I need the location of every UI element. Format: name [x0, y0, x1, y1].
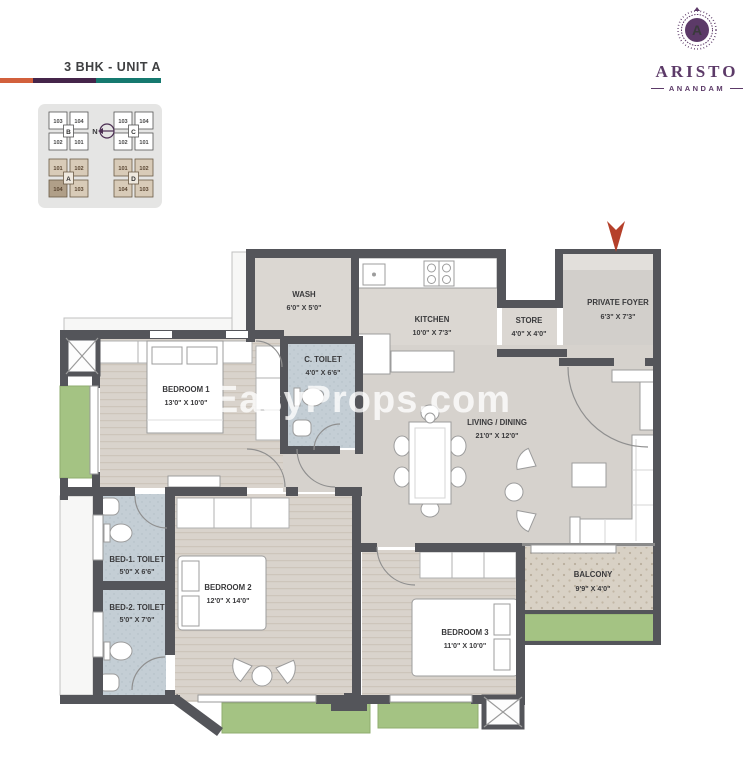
- svg-text:103: 103: [139, 187, 148, 193]
- room-label-bed2-toilet: BED-2. TOILET: [109, 603, 165, 612]
- c-toilet-basin-icon: [293, 420, 311, 436]
- room-label-bedroom1: BEDROOM 1: [162, 385, 210, 394]
- svg-text:B: B: [66, 129, 71, 136]
- logo-emblem-icon: A: [674, 6, 720, 56]
- bed2-toilet-wc-icon: [104, 642, 132, 660]
- room-dims-bedroom2: 12'0" X 14'0": [206, 596, 249, 605]
- logo-brand-text: ARISTO: [642, 62, 751, 82]
- entry-arrow-icon: [607, 221, 625, 252]
- room-label-bed1-toilet: BED-1. TOILET: [109, 555, 165, 564]
- room-dims-bed2-toilet: 5'0" X 7'0": [119, 615, 154, 624]
- svg-text:102: 102: [118, 140, 127, 146]
- room-dims-private-foyer: 6'3" X 7'3": [600, 312, 635, 321]
- bed1-toilet-wc-icon: [104, 524, 132, 542]
- room-label-wash: WASH: [292, 290, 316, 299]
- foyer-bench: [612, 370, 654, 382]
- room-label-store: STORE: [516, 316, 543, 325]
- bedroom3-wardrobe: [420, 552, 516, 578]
- svg-text:103: 103: [74, 187, 83, 193]
- room-label-bedroom3: BEDROOM 3: [441, 628, 489, 637]
- room-dims-balcony: 9'9" X 4'0": [575, 584, 610, 593]
- room-dims-living-dining: 21'0" X 12'0": [475, 431, 518, 440]
- room-dims-kitchen: 10'0" X 7'3": [412, 328, 451, 337]
- svg-text:104: 104: [118, 187, 128, 193]
- page-title: 3 BHK - UNIT A: [0, 60, 161, 74]
- tricolor-bar: [0, 78, 161, 83]
- watermark-text: EasyProps.com: [213, 379, 511, 421]
- room-dims-c-toilet: 4'0" X 6'6": [305, 368, 340, 377]
- title-block: 3 BHK - UNIT A: [0, 60, 161, 83]
- room-label-private-foyer: PRIVATE FOYER: [587, 298, 649, 307]
- room-dims-store: 4'0" X 4'0": [511, 329, 546, 338]
- stove-icon: [424, 261, 454, 286]
- bedroom1-dresser: [168, 476, 220, 487]
- svg-text:N: N: [92, 127, 97, 136]
- svg-text:A: A: [66, 176, 71, 183]
- bedroom2-wardrobe: [177, 498, 289, 528]
- bar-orange: [0, 78, 33, 83]
- svg-text:103: 103: [118, 119, 127, 125]
- bar-purple: [33, 78, 96, 83]
- svg-text:104: 104: [74, 119, 84, 125]
- floor-plan: 103 104 102 101 B 103 104 102 101 C N: [0, 0, 751, 768]
- room-label-c-toilet: C. TOILET: [304, 355, 342, 364]
- coffee-table: [572, 463, 606, 487]
- room-label-bedroom2: BEDROOM 2: [204, 583, 252, 592]
- bedroom2-bed: [178, 556, 266, 630]
- room-dims-bedroom1: 13'0" X 10'0": [164, 398, 207, 407]
- sink-icon: [363, 264, 385, 285]
- svg-text:103: 103: [53, 119, 62, 125]
- svg-text:104: 104: [53, 187, 63, 193]
- logo-sub-text: ANANDAM: [642, 84, 751, 93]
- svg-text:101: 101: [139, 140, 148, 146]
- bedroom3-bed: [412, 599, 518, 676]
- room-dims-bed1-toilet: 5'0" X 6'6": [119, 567, 154, 576]
- svg-text:104: 104: [139, 119, 149, 125]
- brand-logo: A ARISTO ANANDAM: [642, 6, 751, 93]
- svg-text:C: C: [131, 129, 136, 136]
- svg-text:102: 102: [53, 140, 62, 146]
- room-label-balcony: BALCONY: [574, 570, 613, 579]
- svg-text:101: 101: [74, 140, 83, 146]
- svg-text:101: 101: [118, 166, 127, 172]
- logo-monogram: A: [692, 22, 702, 38]
- svg-text:D: D: [131, 176, 136, 183]
- diagonal-wall: [174, 698, 220, 732]
- svg-text:102: 102: [139, 166, 148, 172]
- room-dims-bedroom3: 11'0" X 10'0": [444, 641, 487, 650]
- bar-teal: [96, 78, 161, 83]
- svg-text:101: 101: [53, 166, 62, 172]
- room-label-kitchen: KITCHEN: [415, 315, 450, 324]
- room-dims-wash: 6'0" X 5'0": [286, 303, 321, 312]
- key-plan: 103 104 102 101 B 103 104 102 101 C N: [38, 104, 162, 208]
- svg-text:102: 102: [74, 166, 83, 172]
